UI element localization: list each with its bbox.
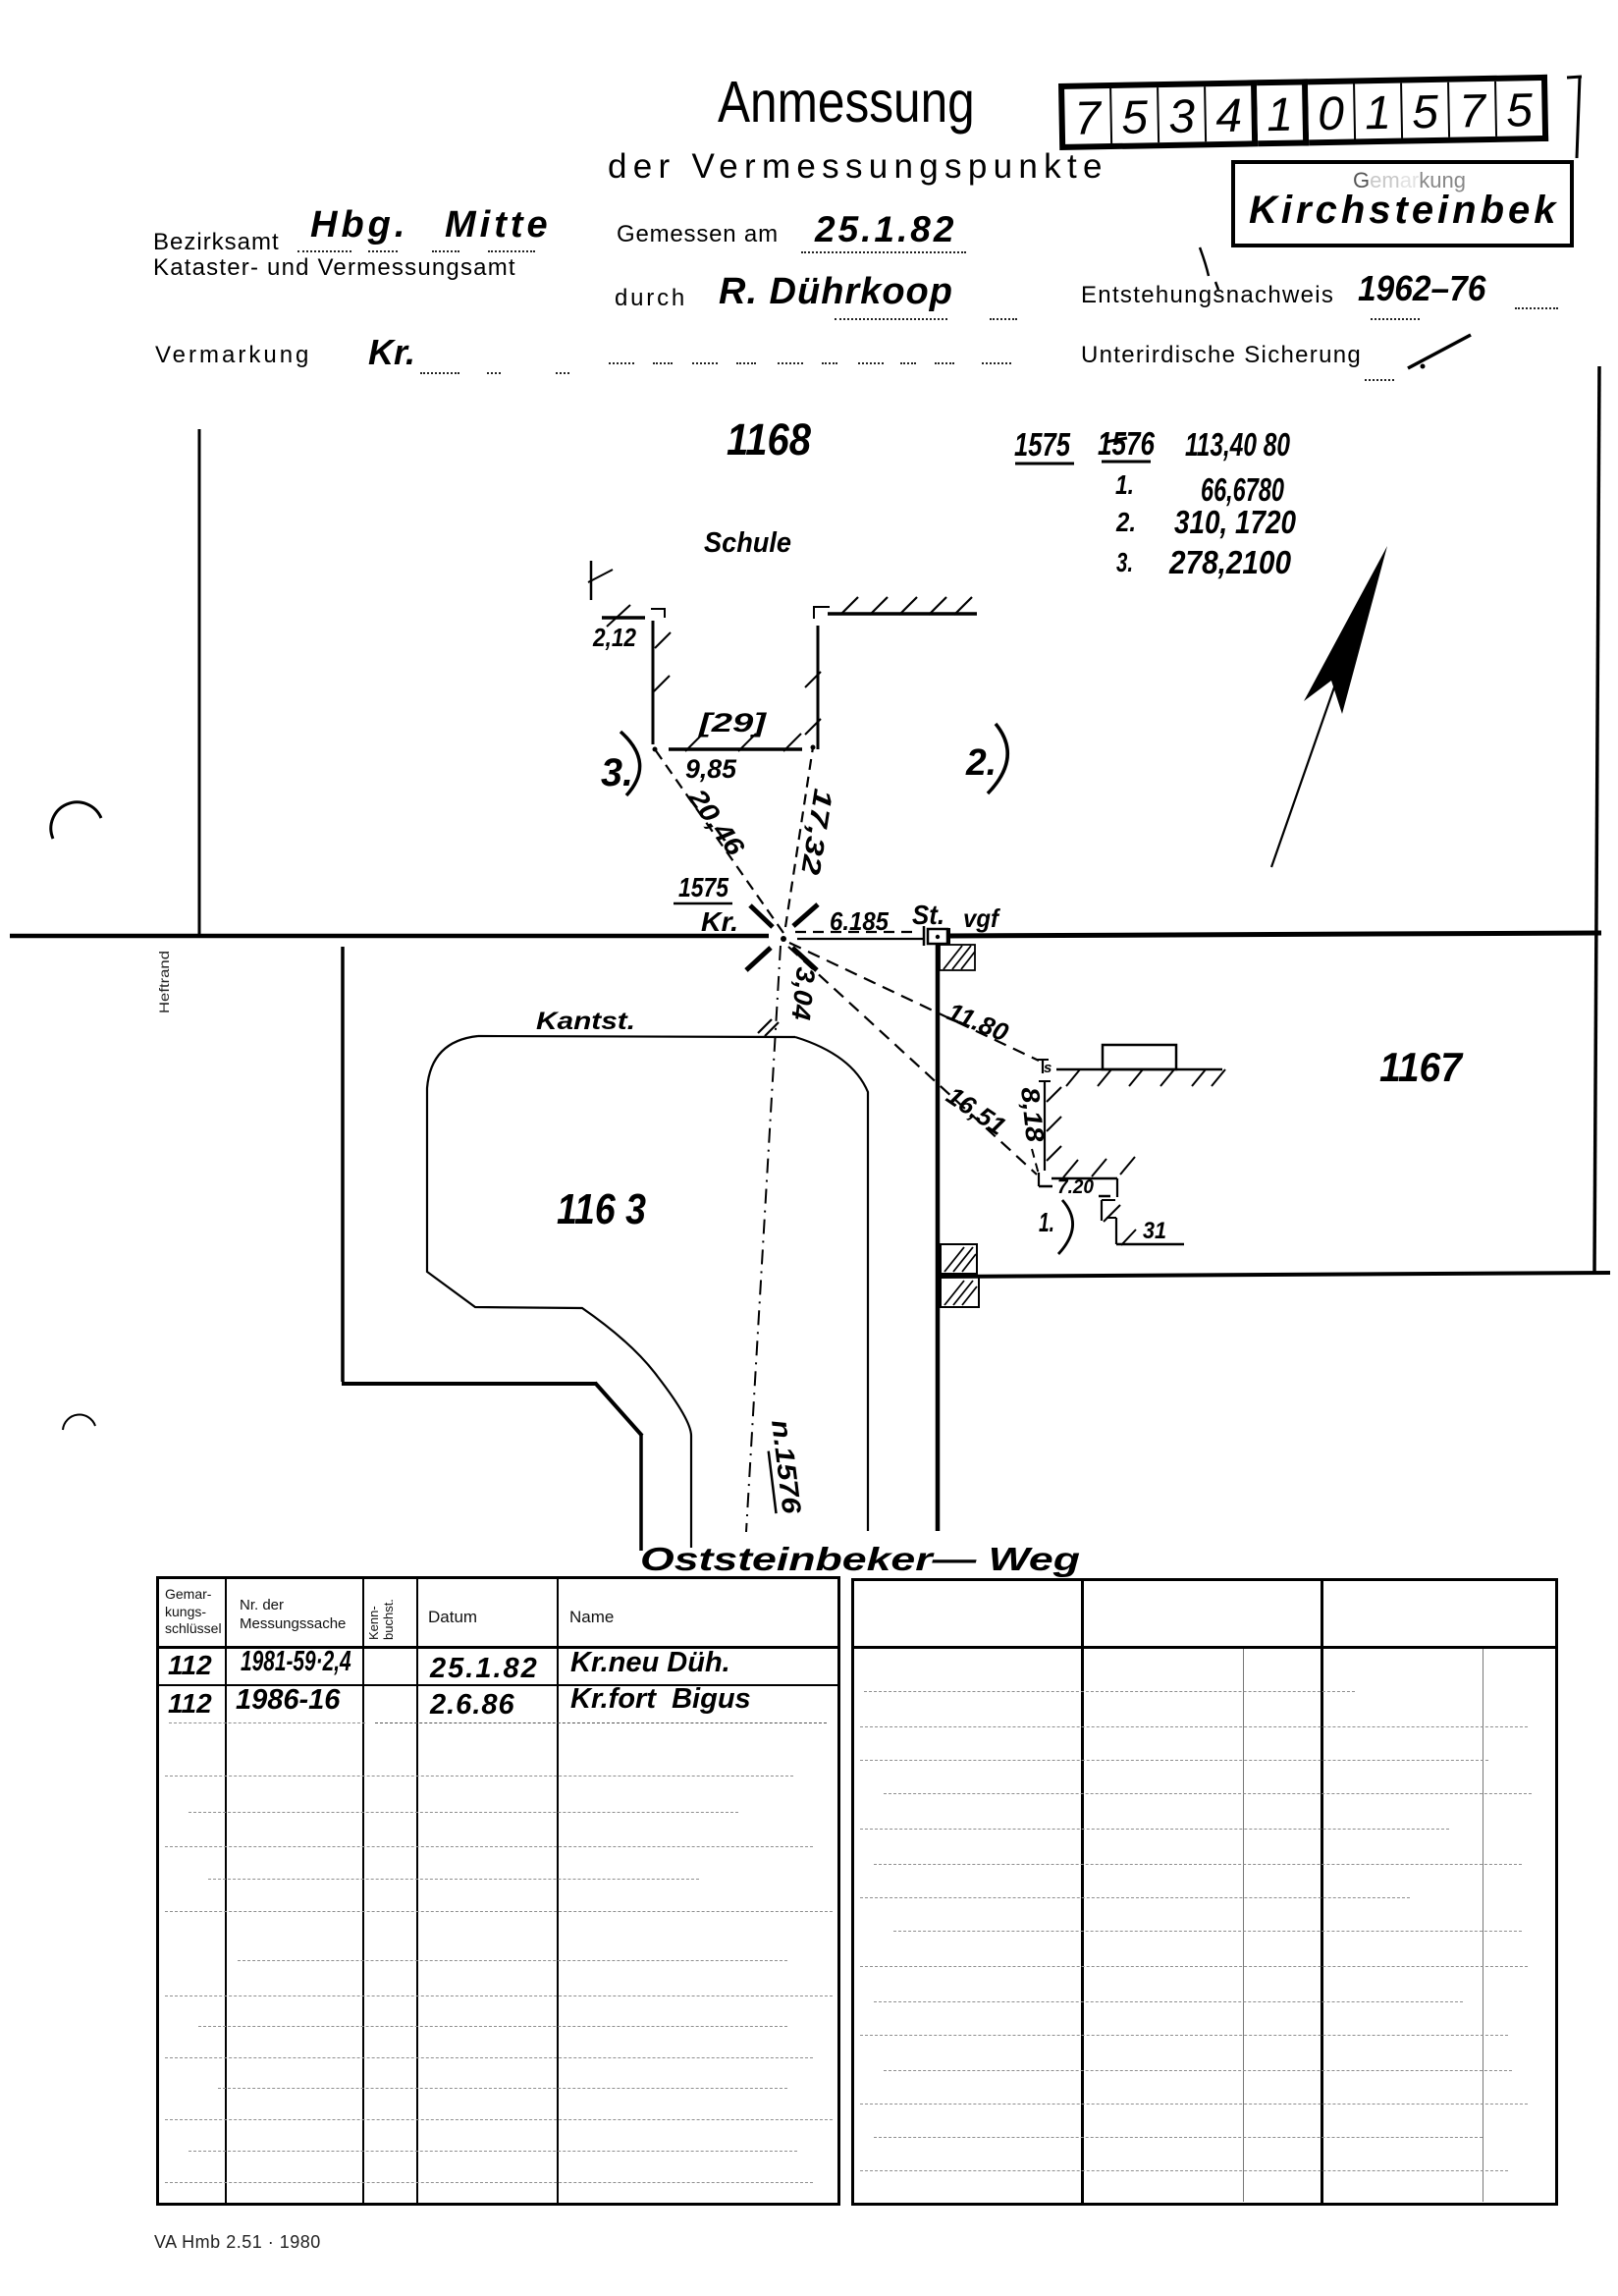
svg-text:20,46: 20,46 (681, 783, 750, 862)
svg-text:2.: 2. (1115, 507, 1136, 537)
svg-text:1.: 1. (1039, 1207, 1054, 1237)
svg-text:1168: 1168 (727, 414, 811, 465)
svg-text:s: s (1044, 1060, 1052, 1076)
svg-text:1575: 1575 (678, 872, 728, 902)
svg-text:66,6780: 66,6780 (1201, 471, 1284, 508)
svg-text:9,85: 9,85 (685, 754, 737, 784)
svg-text:17,32: 17,32 (795, 787, 837, 877)
svg-text:2,12: 2,12 (592, 623, 636, 652)
svg-text:8,18: 8,18 (1015, 1085, 1051, 1143)
svg-text:113,40 80: 113,40 80 (1185, 426, 1290, 463)
svg-text:116 3: 116 3 (557, 1185, 646, 1233)
svg-text:Kr.: Kr. (701, 906, 738, 937)
svg-text:n.1576: n.1576 (766, 1418, 807, 1516)
svg-text:3,04: 3,04 (785, 965, 820, 1021)
svg-text:16,51: 16,51 (942, 1080, 1011, 1141)
svg-text:1575: 1575 (1014, 426, 1070, 463)
svg-text:1576: 1576 (1098, 425, 1156, 462)
svg-text:1.: 1. (1115, 469, 1134, 500)
svg-text:278,2100: 278,2100 (1168, 544, 1291, 580)
svg-text:Oststeinbeker— Weg: Oststeinbeker— Weg (640, 1541, 1080, 1577)
svg-text:11.80: 11.80 (944, 997, 1013, 1048)
svg-text:3.: 3. (601, 751, 633, 794)
svg-text:Heftrand: Heftrand (156, 951, 172, 1013)
svg-text:6.185: 6.185 (830, 906, 889, 936)
svg-text:Kantst.: Kantst. (536, 1008, 635, 1035)
svg-text:31: 31 (1143, 1218, 1166, 1244)
svg-text:St.: St. (912, 900, 944, 930)
svg-text:Schule: Schule (704, 527, 791, 559)
svg-text:1167: 1167 (1379, 1044, 1464, 1090)
svg-text:7.20: 7.20 (1057, 1176, 1094, 1198)
svg-text:[29]: [29] (698, 708, 768, 738)
svg-text:vgf: vgf (963, 903, 1000, 933)
svg-text:310, 1720: 310, 1720 (1174, 504, 1297, 540)
svg-text:3.: 3. (1116, 547, 1133, 577)
svg-text:2.: 2. (965, 742, 997, 784)
